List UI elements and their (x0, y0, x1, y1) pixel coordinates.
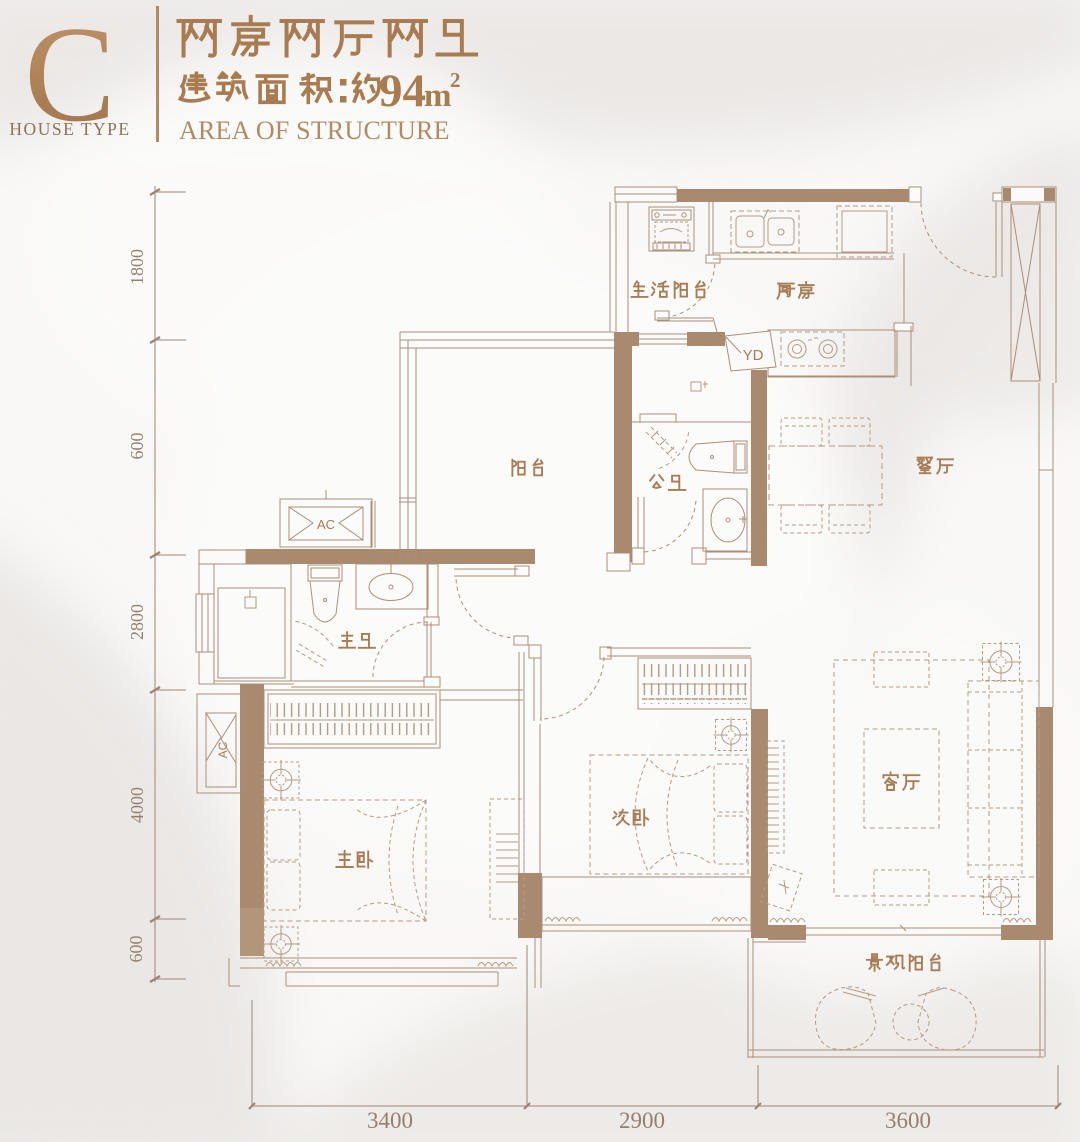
svg-text:HOUSE TYPE: HOUSE TYPE (9, 119, 130, 139)
svg-text:600: 600 (127, 433, 147, 460)
svg-text:2800: 2800 (127, 604, 147, 640)
svg-text:4000: 4000 (127, 787, 147, 823)
svg-text:2900: 2900 (619, 1108, 665, 1133)
svg-text:AREA OF STRUCTURE: AREA OF STRUCTURE (179, 116, 450, 145)
svg-text:600: 600 (126, 936, 146, 963)
svg-text:3400: 3400 (367, 1108, 413, 1133)
svg-text:94: 94 (379, 65, 426, 117)
svg-text:AC: AC (317, 517, 335, 532)
svg-text:3600: 3600 (885, 1108, 931, 1133)
svg-text:2: 2 (450, 68, 461, 92)
svg-text:m: m (424, 78, 452, 114)
svg-text:YD: YD (743, 347, 764, 364)
svg-text:AC: AC (216, 741, 230, 758)
svg-text:1800: 1800 (127, 249, 147, 285)
